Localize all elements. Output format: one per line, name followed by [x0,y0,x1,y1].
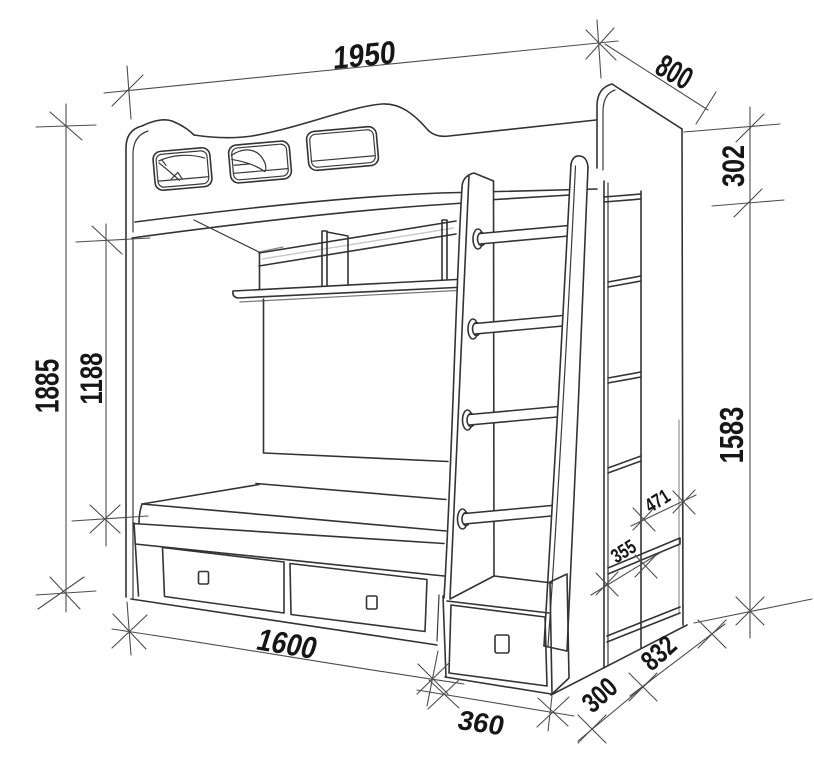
svg-text:302: 302 [716,145,751,187]
svg-text:1188: 1188 [74,353,109,405]
svg-text:360: 360 [455,704,508,741]
svg-text:1885: 1885 [30,359,66,413]
svg-text:1583: 1583 [714,407,751,464]
svg-text:1950: 1950 [333,35,397,76]
